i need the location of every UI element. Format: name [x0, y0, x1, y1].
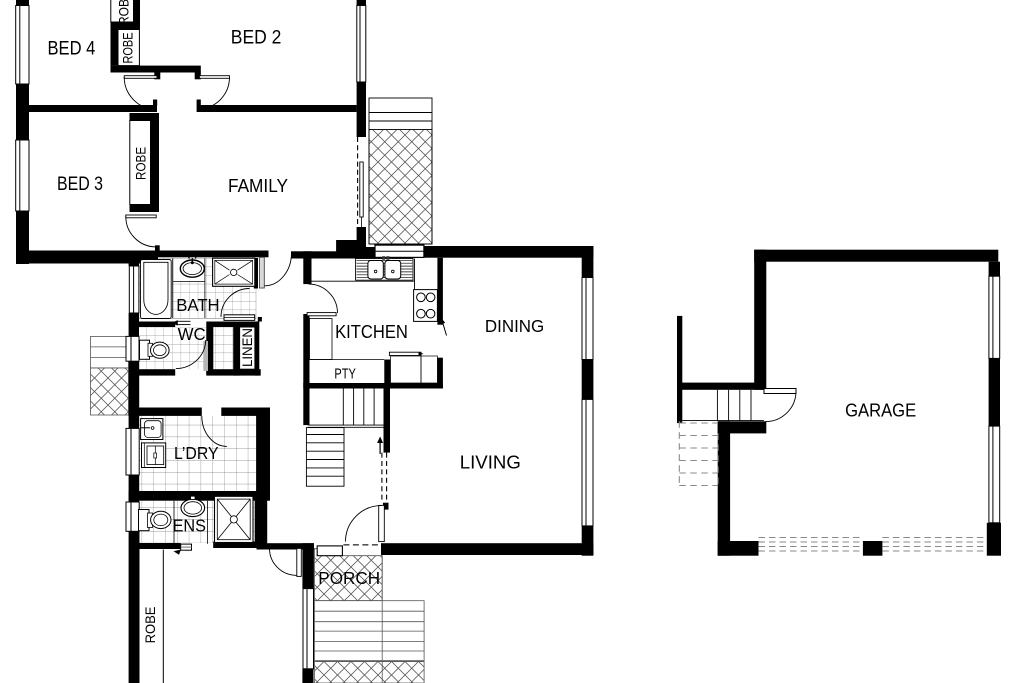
svg-text:BATH: BATH: [176, 295, 219, 315]
svg-text:DINING: DINING: [485, 316, 544, 336]
svg-text:PTY: PTY: [334, 367, 355, 383]
svg-text:KITCHEN: KITCHEN: [335, 322, 408, 342]
svg-text:LINEN: LINEN: [240, 328, 255, 367]
svg-text:BED 2: BED 2: [231, 28, 282, 49]
svg-text:WC: WC: [178, 324, 206, 344]
svg-text:PORCH: PORCH: [318, 568, 380, 588]
svg-text:FAMILY: FAMILY: [228, 175, 288, 196]
svg-text:BED 3: BED 3: [57, 174, 103, 195]
svg-text:L’DRY: L’DRY: [174, 443, 219, 463]
svg-text:ROBE: ROBE: [121, 33, 136, 64]
svg-text:BED 4: BED 4: [48, 38, 96, 59]
svg-text:ROBE: ROBE: [117, 0, 132, 25]
svg-text:ROBE: ROBE: [143, 607, 158, 644]
svg-text:ENS: ENS: [173, 515, 206, 535]
svg-text:LIVING: LIVING: [460, 453, 521, 473]
svg-text:GARAGE: GARAGE: [845, 401, 916, 421]
svg-text:ROBE: ROBE: [134, 147, 149, 180]
